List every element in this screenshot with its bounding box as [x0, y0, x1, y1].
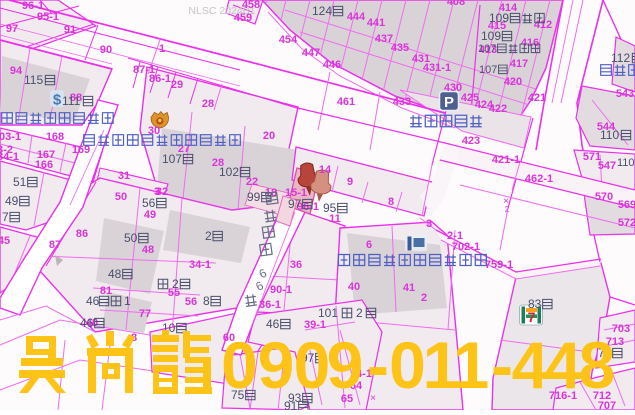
- svg-text:50: 50: [115, 191, 127, 203]
- svg-text:29: 29: [171, 79, 183, 91]
- svg-text:103-1: 103-1: [0, 131, 21, 143]
- svg-text:$: $: [53, 92, 62, 109]
- svg-text:430: 430: [444, 82, 462, 94]
- svg-text:20: 20: [263, 130, 275, 142]
- svg-text:28: 28: [202, 98, 214, 110]
- svg-text:41: 41: [403, 282, 415, 294]
- svg-text:0: 0: [221, 328, 258, 402]
- svg-text:56: 56: [142, 196, 156, 210]
- svg-text:102: 102: [219, 165, 239, 179]
- svg-text:40: 40: [348, 281, 360, 293]
- svg-text:447: 447: [302, 47, 320, 59]
- svg-text:81: 81: [100, 285, 112, 297]
- svg-text:56: 56: [185, 296, 197, 308]
- svg-text:115: 115: [24, 73, 43, 87]
- svg-text:110: 110: [617, 157, 635, 169]
- svg-text:109: 109: [481, 29, 501, 43]
- svg-text:421-1: 421-1: [492, 154, 520, 166]
- svg-text:101: 101: [318, 306, 338, 320]
- svg-text:441: 441: [367, 17, 385, 29]
- svg-text:95: 95: [323, 201, 337, 215]
- svg-text:14: 14: [319, 164, 332, 176]
- svg-text:91: 91: [64, 24, 76, 36]
- svg-text:435: 435: [391, 42, 409, 54]
- svg-text:48: 48: [108, 267, 122, 281]
- svg-text:77: 77: [139, 308, 151, 320]
- svg-text:569: 569: [618, 199, 635, 211]
- svg-text:9: 9: [258, 328, 295, 402]
- svg-text:112: 112: [611, 51, 630, 65]
- svg-text:423: 423: [462, 135, 480, 147]
- svg-text:446: 446: [323, 59, 341, 71]
- svg-text:111: 111: [62, 94, 81, 108]
- svg-text:0: 0: [389, 328, 426, 402]
- svg-text:416: 416: [521, 37, 539, 49]
- svg-text:31: 31: [118, 170, 130, 182]
- svg-text:51: 51: [13, 175, 27, 189]
- svg-text:50: 50: [124, 231, 138, 245]
- svg-text:412: 412: [534, 19, 552, 31]
- svg-text:34-1: 34-1: [189, 259, 211, 271]
- svg-text:759-1: 759-1: [485, 259, 513, 271]
- svg-text:94: 94: [10, 65, 23, 77]
- svg-text:1: 1: [159, 43, 165, 55]
- svg-text:97: 97: [6, 23, 18, 35]
- svg-text:49: 49: [5, 194, 19, 208]
- svg-text:-: -: [491, 328, 513, 402]
- svg-text:454: 454: [279, 34, 298, 46]
- svg-text:107: 107: [478, 43, 496, 55]
- svg-text:444: 444: [347, 11, 366, 23]
- svg-text:6: 6: [366, 239, 372, 251]
- svg-text:46: 46: [86, 294, 100, 308]
- svg-text:417: 417: [510, 58, 528, 70]
- svg-text:461: 461: [337, 96, 355, 108]
- svg-text:48: 48: [142, 244, 154, 256]
- svg-text:34-1: 34-1: [0, 151, 19, 163]
- svg-text:459: 459: [234, 12, 252, 24]
- svg-text:420: 420: [504, 76, 522, 88]
- svg-text:8: 8: [203, 294, 210, 308]
- svg-text:110: 110: [600, 128, 619, 142]
- svg-text:168: 168: [46, 131, 64, 143]
- svg-text:107: 107: [479, 64, 497, 76]
- svg-text:1: 1: [453, 328, 490, 402]
- svg-text:7: 7: [528, 309, 536, 325]
- svg-text:90-1: 90-1: [270, 284, 292, 296]
- svg-text:107: 107: [162, 152, 182, 166]
- svg-text:4: 4: [545, 328, 582, 402]
- svg-text:9: 9: [327, 328, 364, 402]
- svg-text:36: 36: [290, 259, 302, 271]
- svg-text:2: 2: [205, 229, 212, 243]
- svg-text:8: 8: [388, 196, 394, 208]
- svg-text:22: 22: [246, 176, 258, 188]
- svg-text:124: 124: [312, 4, 332, 18]
- svg-text:90: 90: [100, 44, 112, 56]
- svg-text:458: 458: [242, 0, 260, 11]
- svg-text:9: 9: [347, 176, 353, 188]
- svg-text:2: 2: [356, 306, 363, 320]
- svg-text:36-1: 36-1: [259, 299, 281, 311]
- svg-text:421: 421: [528, 92, 546, 104]
- svg-text:4: 4: [512, 328, 549, 402]
- svg-text:-: -: [367, 328, 389, 402]
- svg-text:109: 109: [489, 11, 509, 25]
- svg-text:95-1: 95-1: [37, 11, 59, 23]
- svg-text:86: 86: [76, 228, 88, 240]
- svg-text:166: 166: [35, 159, 53, 171]
- svg-text:0: 0: [294, 328, 331, 402]
- svg-text:97: 97: [288, 197, 302, 211]
- svg-text:8: 8: [579, 328, 616, 402]
- svg-text:431-1: 431-1: [423, 62, 451, 74]
- svg-text:547: 547: [598, 160, 616, 172]
- svg-text:408: 408: [447, 0, 465, 8]
- svg-text:45: 45: [0, 235, 10, 247]
- svg-text:1: 1: [124, 294, 131, 308]
- svg-text:433: 433: [393, 96, 411, 108]
- svg-text:2: 2: [421, 292, 427, 304]
- svg-text:570: 570: [595, 191, 613, 203]
- svg-text:49: 49: [144, 209, 156, 221]
- svg-text:99: 99: [247, 190, 261, 204]
- svg-text:46: 46: [80, 316, 94, 330]
- svg-text:2: 2: [505, 205, 510, 214]
- svg-text:2: 2: [172, 277, 179, 291]
- svg-text:P: P: [444, 94, 454, 111]
- svg-text:7: 7: [2, 210, 9, 224]
- svg-text:87: 87: [49, 239, 61, 251]
- svg-text:83: 83: [528, 297, 542, 311]
- svg-text:572: 572: [618, 217, 635, 229]
- svg-text:422: 422: [489, 103, 507, 115]
- svg-text:86-1: 86-1: [149, 73, 171, 85]
- svg-text:702-1: 702-1: [452, 241, 480, 253]
- svg-text:3: 3: [426, 218, 432, 230]
- svg-text:543: 543: [616, 88, 634, 100]
- svg-text:462-1: 462-1: [525, 173, 553, 185]
